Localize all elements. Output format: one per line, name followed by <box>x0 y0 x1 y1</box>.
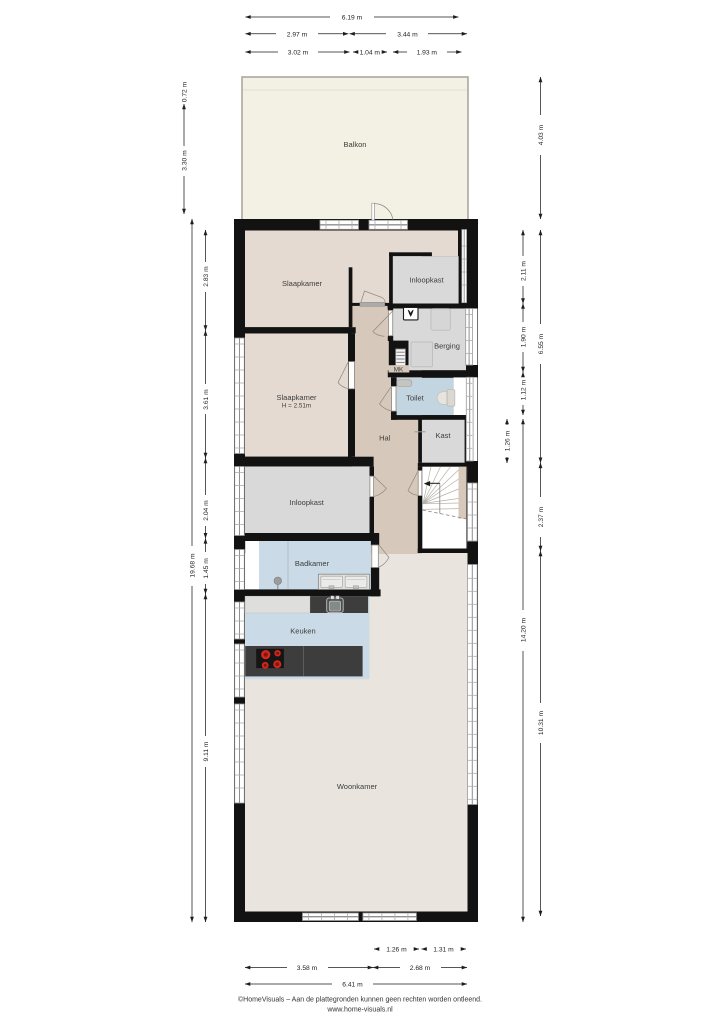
svg-text:9.11 m: 9.11 m <box>203 741 210 761</box>
svg-text:6.41 m: 6.41 m <box>342 982 363 989</box>
svg-text:6.19 m: 6.19 m <box>342 15 363 22</box>
svg-text:4.03 m: 4.03 m <box>538 124 545 145</box>
svg-text:2.68 m: 2.68 m <box>410 965 431 972</box>
svg-text:Inloopkast: Inloopkast <box>290 498 325 507</box>
svg-text:Slaapkamer: Slaapkamer <box>282 279 323 288</box>
svg-text:2.97 m: 2.97 m <box>287 31 308 38</box>
svg-text:3.02 m: 3.02 m <box>288 50 309 57</box>
svg-text:©HomeVisuals – Aan de plattegr: ©HomeVisuals – Aan de plattegronden kunn… <box>238 996 482 1004</box>
svg-text:0.72 m: 0.72 m <box>182 81 189 102</box>
svg-text:Badkamer: Badkamer <box>295 559 330 568</box>
svg-text:3.58 m: 3.58 m <box>297 965 318 972</box>
svg-text:1.04 m: 1.04 m <box>360 50 381 57</box>
svg-text:2.83 m: 2.83 m <box>203 266 210 287</box>
svg-text:2.04 m: 2.04 m <box>203 500 210 521</box>
svg-text:1.93 m: 1.93 m <box>417 50 438 57</box>
svg-text:Slaapkamer: Slaapkamer <box>276 393 317 402</box>
svg-text:www.home-visuals.nl: www.home-visuals.nl <box>326 1007 393 1014</box>
svg-text:1.45 m: 1.45 m <box>203 558 210 579</box>
svg-text:1.90 m: 1.90 m <box>521 326 528 347</box>
svg-text:3.61 m: 3.61 m <box>203 389 210 410</box>
svg-text:1.26 m: 1.26 m <box>386 947 407 954</box>
svg-text:14.20 m: 14.20 m <box>521 617 528 642</box>
svg-text:Berging: Berging <box>434 341 460 350</box>
svg-text:6.55 m: 6.55 m <box>538 333 545 354</box>
svg-text:19.68 m: 19.68 m <box>190 553 197 578</box>
svg-text:1.31 m: 1.31 m <box>433 947 454 954</box>
svg-text:MK: MK <box>394 367 404 374</box>
svg-text:Balkon: Balkon <box>344 140 367 149</box>
svg-text:Inloopkast: Inloopkast <box>409 276 444 285</box>
svg-text:1.26 m: 1.26 m <box>505 430 512 451</box>
svg-text:Woonkamer: Woonkamer <box>337 782 378 791</box>
svg-text:3.44 m: 3.44 m <box>397 31 418 38</box>
svg-text:1.12 m: 1.12 m <box>521 379 528 400</box>
svg-text:Kast: Kast <box>435 431 451 440</box>
svg-text:Toilet: Toilet <box>406 394 424 403</box>
svg-text:Keuken: Keuken <box>290 627 315 636</box>
svg-text:2.37 m: 2.37 m <box>538 506 545 527</box>
svg-text:H = 2.51m: H = 2.51m <box>282 402 311 409</box>
svg-text:Hal: Hal <box>379 433 391 442</box>
svg-text:2.11 m: 2.11 m <box>521 261 528 281</box>
svg-text:10.31 m: 10.31 m <box>538 710 545 735</box>
svg-text:3.30 m: 3.30 m <box>182 150 189 171</box>
